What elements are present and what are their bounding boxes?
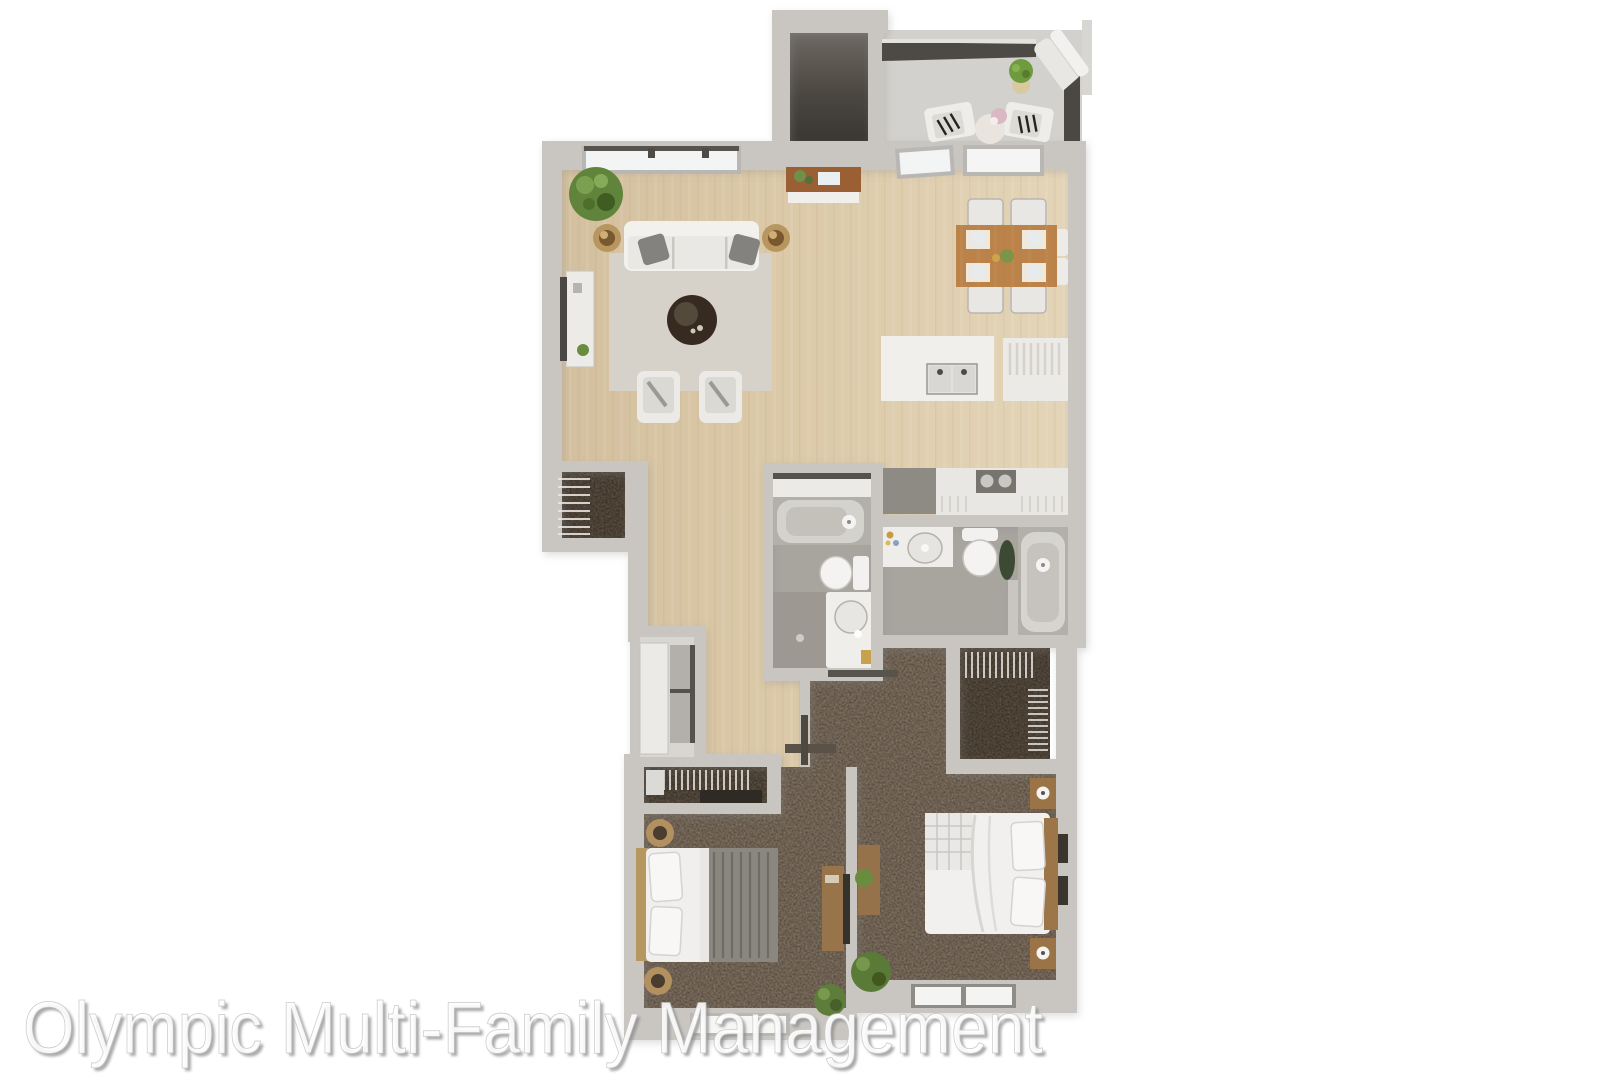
svg-text:Olympic Multi-Family Managemen: Olympic Multi-Family Management bbox=[23, 988, 1043, 1069]
